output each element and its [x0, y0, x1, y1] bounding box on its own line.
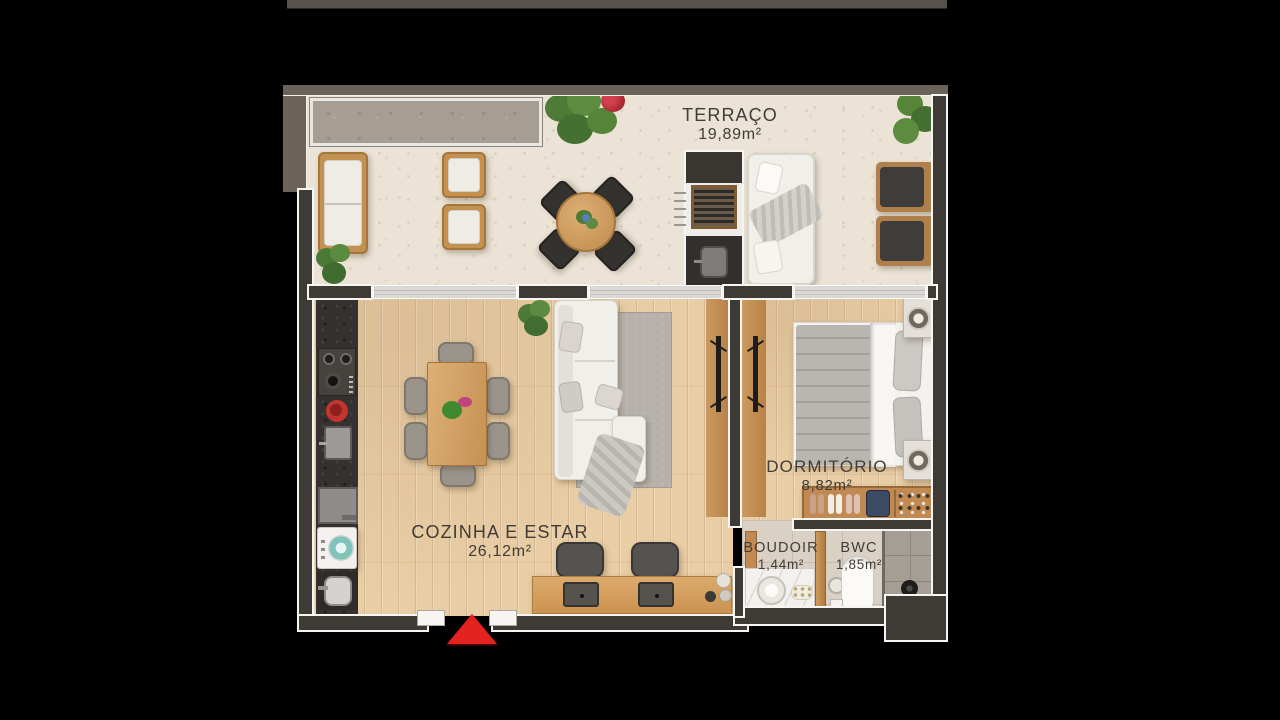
wall-right — [931, 94, 948, 642]
room-area: 19,89m² — [640, 126, 820, 145]
outdoor-armchair-1 — [442, 152, 486, 198]
sofa-pillow — [558, 320, 584, 353]
room-area: 8,82m² — [737, 477, 917, 494]
wall-left — [297, 188, 314, 632]
daybed-blanket — [747, 182, 824, 248]
desk-vase — [716, 573, 731, 588]
kitchen-counter — [316, 300, 358, 614]
vanity-tray — [791, 585, 813, 600]
shoe — [810, 494, 816, 514]
dishwasher — [318, 487, 358, 524]
bedroom-glass-door — [794, 285, 926, 299]
top-edge-structure — [287, 0, 947, 9]
office-chair — [631, 542, 679, 578]
bed-duvet — [796, 325, 872, 465]
cooking-pot — [326, 400, 348, 422]
monitor — [638, 582, 674, 607]
room-label-dormitorio: DORMITÓRIO 8,82m² — [737, 457, 917, 494]
desk — [532, 576, 732, 614]
wall-corner-bottom-right — [884, 594, 948, 642]
entrance-arrow — [447, 614, 497, 644]
monitor — [563, 582, 599, 607]
desk-vase — [719, 589, 732, 602]
grill-skewers — [674, 188, 686, 226]
armchair-cushion — [448, 158, 480, 192]
dining-chair — [440, 463, 476, 487]
wall-terrace-divider-end — [926, 284, 938, 300]
room-name: BWC — [811, 540, 907, 557]
grill-sink — [700, 246, 728, 278]
cooktop — [318, 348, 356, 396]
room-area: 1,85m² — [811, 557, 907, 573]
dining-chair — [404, 377, 428, 415]
tv-bedroom — [753, 336, 758, 412]
terrace-planter — [310, 98, 542, 146]
room-label-bwc: BWC 1,85m² — [811, 540, 907, 572]
dining-chair — [486, 422, 510, 460]
shoe — [818, 494, 824, 514]
outdoor-sofa-cushions — [324, 160, 362, 246]
wall-bottom-left — [297, 614, 429, 632]
table-lamp — [907, 307, 930, 330]
grill-counter — [686, 236, 742, 285]
daybed-pillow — [754, 161, 784, 195]
room-label-terraco: TERRAÇO 19,89m² — [640, 105, 820, 144]
tv-living — [716, 336, 721, 412]
lounge-chair-2 — [876, 216, 934, 266]
washing-machine — [317, 527, 357, 569]
room-name: DORMITÓRIO — [737, 457, 917, 477]
wall-boudoir-west — [733, 566, 745, 618]
vanity-sink — [757, 576, 786, 605]
shoe — [828, 494, 834, 514]
dining-chair — [486, 377, 510, 415]
outdoor-sofa — [318, 152, 368, 254]
daybed-pillow — [752, 239, 783, 275]
grill-station — [684, 150, 744, 287]
shoe — [836, 494, 842, 514]
exterior-wall-left-upper — [283, 96, 307, 192]
sofa-pillow — [558, 381, 584, 414]
exterior-wall-top — [283, 85, 948, 96]
room-label-cozinha-estar: COZINHA E ESTAR 26,12m² — [395, 522, 605, 561]
nightstand — [903, 298, 933, 338]
shoe — [846, 494, 852, 514]
room-name: TERRAÇO — [640, 105, 820, 126]
bed-sheet-fold — [870, 323, 896, 467]
desk-lamp — [705, 591, 716, 602]
living-plant — [516, 300, 554, 338]
grill-grate — [691, 185, 737, 229]
outdoor-armchair-2 — [442, 204, 486, 250]
wall-terrace-divider-b — [517, 284, 589, 300]
wall-bottom-mid — [491, 614, 749, 632]
bed-pillow — [892, 330, 923, 391]
shoe — [854, 494, 860, 514]
sliding-glass-door — [589, 285, 722, 299]
floorplan-canvas: TERRAÇO 19,89m² COZINHA E ESTAR 26,12m² … — [0, 0, 1280, 720]
wall-bedroom-hall — [792, 518, 933, 531]
kitchen-sink — [324, 426, 352, 460]
terrace-plant — [314, 244, 354, 288]
daybed-lounger — [747, 153, 815, 285]
lounge-chair-1 — [876, 162, 934, 212]
room-area: 26,12m² — [395, 543, 605, 562]
laundry-tub — [318, 572, 358, 610]
armchair-cushion — [448, 210, 480, 244]
door-jamb-left — [417, 610, 445, 626]
dining-chair — [404, 422, 428, 460]
grill-hood — [686, 152, 742, 183]
outdoor-round-table — [556, 192, 616, 252]
room-name: COZINHA E ESTAR — [395, 522, 605, 543]
wall-terrace-divider-a — [307, 284, 373, 300]
sliding-glass-door — [373, 285, 517, 299]
dining-table — [427, 362, 487, 466]
